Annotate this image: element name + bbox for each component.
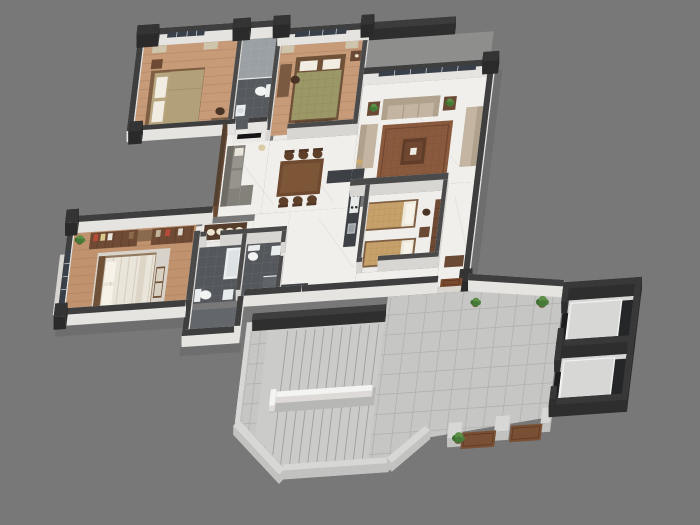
kitchen-burner [351,206,354,208]
bath1-basin-bowl [237,108,243,113]
master-wardrobe-clothes [93,234,99,241]
master-wardrobe-clothes [100,234,106,241]
wall-bathblock-north-west-face [200,236,206,248]
plant-master-corner-foliage [77,239,83,245]
foyer-sofa-chaise [238,185,253,206]
pillar-cap-top [233,18,252,29]
pillar-cap-face [273,24,290,38]
dining-chair [279,197,289,206]
bedroom1-curtain [203,42,218,50]
bed2-pillow [322,59,341,70]
lift-wall-east-face [621,400,627,412]
master-bath-toilet-bowl [200,290,211,299]
wall-common-bath-east-north-face [281,242,285,253]
kitchen-burner [355,206,358,208]
pillar-cap-top [273,15,291,26]
bedroom2-curtain [281,45,295,53]
floorplan-stage [0,0,700,525]
living-vase [356,159,362,165]
pillar-cap-top [54,303,68,317]
bedroom3-chair [422,209,430,216]
foyer-sofa-pillow [234,148,244,156]
common-bath-basin [271,245,282,255]
wall-utility-east-face [234,326,240,337]
bedroom3-nightstand [419,227,431,238]
wall-bedroom1-south-east-face [248,121,267,133]
pillar-cap-face [128,131,141,145]
dining-chair [284,152,294,161]
dining-chair [298,151,308,160]
master-bath-basin [222,289,234,300]
stair-railing-end-face [269,405,275,411]
bedroom2-lamp [355,54,359,57]
entrance-wall-stub-face [494,431,508,441]
pillar-cap-face [361,24,374,38]
wall-bedroom2-east-face [353,124,358,135]
entry-console [444,255,464,268]
master-wardrobe-clothes [129,232,135,239]
threshold [235,129,248,135]
wall-foyer-west-wood-face [213,206,217,217]
wall-bathblock-north-west-top [200,232,207,237]
pillar-cap-face [233,27,250,41]
wall-bedroom3-south-west-face [356,262,362,273]
kitchen-counter-return [326,169,352,183]
bed1-nightstand [151,59,163,69]
kitchen-sink-basin [348,224,355,232]
master-dresser [137,230,153,242]
pillar-cap-face [65,222,77,236]
foyer-lamp [258,145,265,151]
common-bath-toilet-bowl [248,252,258,261]
master-wardrobe-clothes [165,229,171,236]
pillar-cap-top [65,209,79,223]
pillar-cap-top [361,14,375,25]
floorplan-3d-render [0,0,700,525]
pillar-cap-face [482,60,498,74]
plant-lobby-south-foliage [455,436,463,443]
bed2-pillow [299,60,318,71]
dining-chair [307,195,317,204]
bedroom1-chair [215,107,224,115]
master-wardrobe-clothes [155,230,161,237]
pillar-cap-top [482,51,499,62]
bedroom2-curtain [345,41,359,49]
plant-living-west-foliage [371,107,377,112]
vanity-basin [207,229,215,236]
living-coffee-table-tray [410,148,417,155]
master-wardrobe-clothes [178,228,184,235]
common-bath-toilet-tank [248,245,261,252]
lift-pillar-face [554,360,560,372]
bed1-duvet [163,69,204,126]
bedroom2-chair [291,76,300,84]
pillar-cap-top [128,121,143,132]
lift-pillar-face [550,398,556,410]
dining-chair [313,150,323,159]
entrance-wall-stub-top [494,415,510,432]
plant-lobby-north-foliage [539,300,547,307]
wall-bedroom3-south-west-top [356,257,362,262]
plant-entry-foliage [473,301,479,307]
lift-pillar-face [561,301,567,313]
dining-table-top [280,162,321,193]
plant-living-east-foliage [447,102,453,107]
pillar-cap-face [54,316,66,330]
pillar-cap-top [137,24,160,35]
master-wardrobe-clothes [107,233,113,240]
pillar-cap-face [137,33,159,48]
bath1-toilet-bowl [255,87,267,96]
dining-chair [293,196,303,205]
